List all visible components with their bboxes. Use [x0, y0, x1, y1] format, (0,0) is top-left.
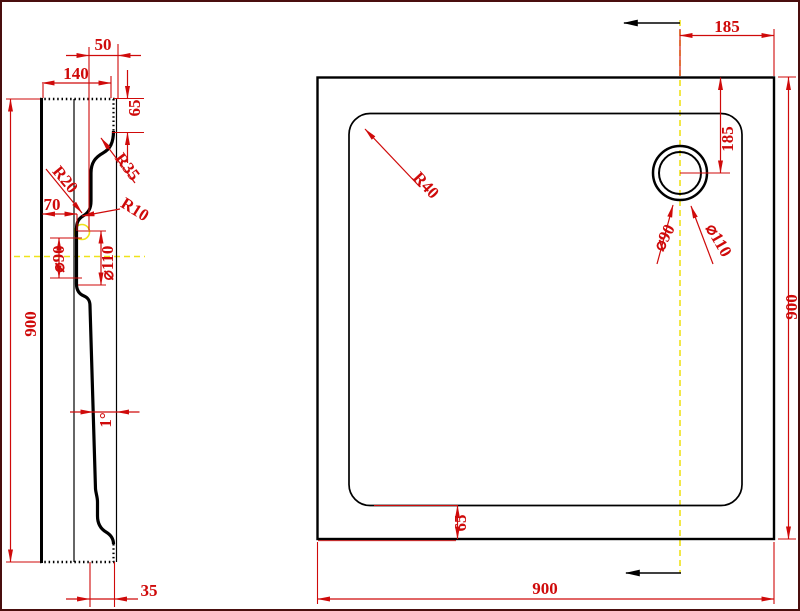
dim-left-height: 900: [21, 311, 40, 337]
dim-left-width: 140: [63, 64, 89, 83]
tray-outer-outline: [318, 78, 775, 540]
drawing-canvas: 50 140 65 900 70 R20 R35 R10 ⌀90 ⌀110 1°…: [2, 2, 798, 609]
dim-plan-drain-from-right: 185: [714, 17, 740, 36]
dim-plan-drain-from-top: 185: [718, 126, 737, 152]
dim-plan-rim: 65: [451, 515, 470, 532]
dim-left-drain-outer: ⌀110: [98, 246, 117, 281]
dim-left-bottom-ledge: 35: [141, 581, 158, 600]
dim-left-width-top: 50: [95, 35, 112, 54]
tray-inner-outline: [349, 114, 742, 506]
plan-dimension-lines: [318, 36, 789, 600]
dim-plan-corner-radius: R40: [409, 168, 443, 202]
dim-plan-drain-inner: ⌀90: [649, 221, 678, 254]
dim-plan-height: 900: [782, 294, 798, 320]
left-view-section: 50 140 65 900 70 R20 R35 R10 ⌀90 ⌀110 1°…: [6, 35, 158, 607]
dim-left-r10: R10: [117, 194, 152, 226]
cad-drawing-page: 50 140 65 900 70 R20 R35 R10 ⌀90 ⌀110 1°…: [0, 0, 800, 611]
dim-plan-drain-outer: ⌀110: [702, 220, 736, 260]
right-view-plan: 185 185 900 900 65 R40 ⌀90 ⌀110: [318, 17, 799, 604]
dim-left-drain-offset: 70: [44, 195, 61, 214]
left-profile-curve: [77, 131, 114, 544]
dim-left-rim-height: 65: [125, 100, 144, 117]
dim-left-drain-inner: ⌀90: [49, 245, 68, 272]
plan-extension-lines: [318, 29, 797, 604]
dim-left-r20: R20: [49, 162, 82, 197]
dim-left-draft-angle: 1°: [96, 412, 115, 427]
dim-plan-width: 900: [532, 579, 558, 598]
